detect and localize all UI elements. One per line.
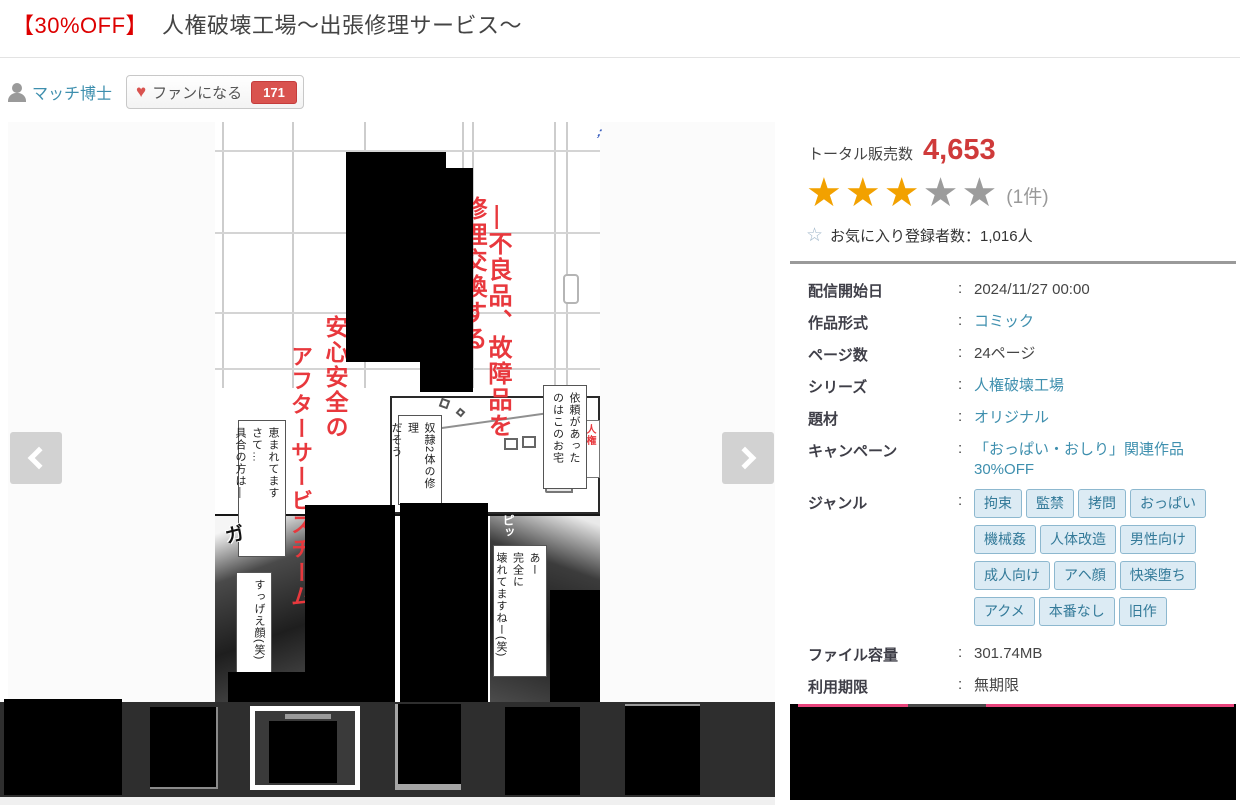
sales-value: 4,653 [923,134,996,167]
table-row-genre: ジャンル : 拘束監禁拷問おっぱい機械姦人体改造男性向け成人向けアヘ顔快楽堕ちア… [808,492,1236,633]
fan-count-badge[interactable]: 171 [251,81,297,104]
censored-region [228,672,320,704]
star-outline-icon: ☆ [806,224,823,247]
genre-tag[interactable]: 機械姦 [974,525,1036,554]
genre-tag[interactable]: 快楽堕ち [1120,561,1196,590]
speech-bubble: あー 完全に 壊れてますねー(笑) [493,545,547,677]
row-label: ページ数 [808,344,958,365]
genre-tag[interactable]: 成人向け [974,561,1050,590]
star-icon: ★ [806,171,845,215]
promo-banner[interactable] [790,704,1236,800]
table-row: 作品形式 : コミック [808,312,1236,333]
prev-page-button[interactable] [10,432,62,484]
page-title: 【30%OFF】人権破壊工場～出張修理サービス～ [12,8,522,40]
row-label: 題材 [808,408,958,429]
row-colon: : [958,676,974,697]
work-title: 人権破壊工場～出張修理サービス～ [162,13,522,38]
table-row: キャンペーン : 「おっぱい・おしり」関連作品30%OFF [808,440,1236,481]
info-panel: トータル販売数 4,653 ★★★★★ (1件) ☆ お気に入り登録者数：1,0… [790,122,1236,708]
sketch-line [554,122,556,388]
work-info-table: 配信開始日 : 2024/11/27 00:00 作品形式 : コミック ページ… [790,264,1236,697]
row-label: 作品形式 [808,312,958,333]
become-fan-button[interactable]: ♥ ファンになる 171 [126,75,304,109]
row-colon: : [958,440,974,481]
row-value: 2024/11/27 00:00 [974,280,1236,301]
product-page: 【30%OFF】人権破壊工場～出張修理サービス～ マッチ博士 ♥ ファンになる … [0,0,1240,805]
row-value: 24ページ [974,344,1236,365]
genre-tag-list: 拘束監禁拷問おっぱい機械姦人体改造男性向け成人向けアヘ顔快楽堕ちアクメ本番なし旧… [974,489,1236,633]
censored-region [420,168,473,392]
rating-count-link[interactable]: (1件) [1006,182,1048,209]
discount-label: 【30%OFF】 [12,13,148,38]
row-colon: : [958,280,974,301]
row-colon: : [958,344,974,365]
censored-region [400,503,488,704]
speech-bubble: 奴隷2体の修理 だそう [398,415,442,505]
window-art [504,438,518,450]
star-icon: ★ [961,171,1000,215]
thumbnail-text-art [285,714,331,719]
subject-link[interactable]: オリジナル [974,408,1236,429]
chevron-left-icon [28,447,51,470]
table-row: 配信開始日 : 2024/11/27 00:00 [808,280,1236,301]
maker-row: マッチ博士 ♥ ファンになる 171 [8,72,304,112]
sales-label: トータル販売数 [808,143,913,164]
censored-region [550,590,600,704]
thumbnail-strip [0,702,775,797]
table-row: ページ数 : 24ページ [808,344,1236,365]
person-icon [8,82,26,102]
window-art [522,436,536,448]
table-row: ファイル容量 : 301.74MB [808,644,1236,665]
row-colon: : [958,408,974,429]
star-icon: ★ [884,171,923,215]
row-label: 利用期限 [808,676,958,697]
sketch-line [566,122,568,388]
genre-tag[interactable]: 拘束 [974,489,1022,518]
sketch-line [215,368,600,370]
row-label: シリーズ [808,376,958,397]
row-label: ファイル容量 [808,644,958,665]
genre-tag[interactable]: 拷問 [1078,489,1126,518]
campaign-link[interactable]: 「おっぱい・おしり」関連作品30%OFF [974,440,1236,481]
favorites-row: ☆ お気に入り登録者数：1,016人 [790,215,1236,247]
row-value: 301.74MB [974,644,1236,665]
row-colon: : [958,376,974,397]
thumbnail[interactable] [505,707,580,795]
sketch-line [222,122,224,388]
door-handle-art [563,274,579,304]
table-row: 利用期限 : 無期限 [808,676,1236,697]
thumbnail[interactable] [4,699,122,795]
genre-tag[interactable]: 旧作 [1119,597,1167,626]
row-value: 無期限 [974,676,1236,697]
promo-accent-line [798,704,1234,707]
speech-bubble: すっげえ顔(笑) [236,572,272,678]
genre-tag[interactable]: 本番なし [1039,597,1115,626]
work-format-link[interactable]: コミック [974,312,1236,333]
fan-button-label: ファンになる [152,82,242,103]
genre-tag[interactable]: おっぱい [1130,489,1206,518]
series-link[interactable]: 人権破壊工場 [974,376,1236,397]
favorites-text: お気に入り登録者数：1,016人 [830,225,1033,246]
censored-region [269,721,337,783]
genre-tag[interactable]: 監禁 [1026,489,1074,518]
star-icon: ★ [845,171,884,215]
genre-tag[interactable]: アヘ顔 [1054,561,1116,590]
maker-name-link[interactable]: マッチ博士 [32,80,112,104]
header-divider [0,57,1240,58]
genre-tag[interactable]: 人体改造 [1040,525,1116,554]
viewer-footer [0,797,775,805]
row-label: キャンペーン [808,440,958,481]
rating-row: ★★★★★ (1件) [790,169,1236,215]
promo-accent-gap [908,704,986,707]
table-row: 題材 : オリジナル [808,408,1236,429]
thumbnail[interactable] [395,704,461,790]
rating-stars: ★★★★★ [806,171,1000,215]
star-icon: ★ [923,171,962,215]
sales-row: トータル販売数 4,653 [790,122,1236,169]
thumbnail[interactable] [150,707,218,789]
chevron-right-icon [734,447,757,470]
row-colon: : [958,312,974,333]
thumbnail-selected[interactable] [250,706,360,790]
genre-tag[interactable]: アクメ [974,597,1035,626]
table-row: シリーズ : 人権破壊工場 [808,376,1236,397]
thumbnail[interactable] [625,704,700,795]
heart-icon: ♥ [136,82,146,102]
next-page-button[interactable] [722,432,774,484]
row-label: 配信開始日 [808,280,958,301]
row-label: ジャンル [808,492,958,633]
sfx-text: ピッ [500,514,517,538]
row-colon: : [958,492,974,633]
genre-tag[interactable]: 男性向け [1120,525,1196,554]
speech-bubble: 依頼があった のはこのお宅 [543,385,587,489]
row-colon: : [958,644,974,665]
